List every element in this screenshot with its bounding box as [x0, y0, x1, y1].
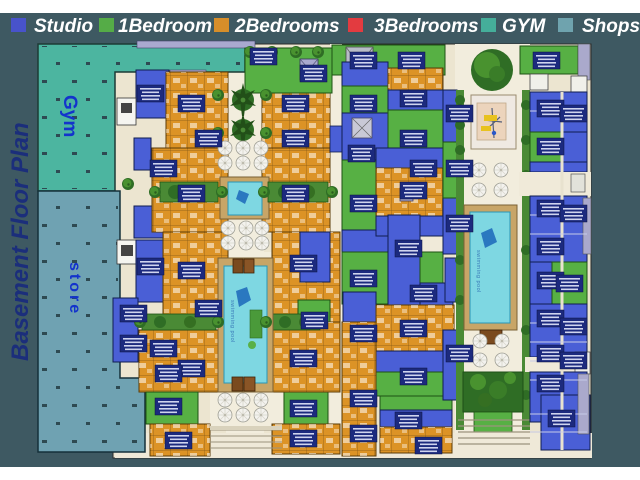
svg-text:store: store — [66, 262, 83, 316]
svg-text:Basement Floor Plan: Basement Floor Plan — [7, 122, 34, 361]
svg-text:Shops: Shops — [582, 16, 640, 37]
svg-text:Gym: Gym — [59, 95, 80, 137]
svg-text:3Bedrooms: 3Bedrooms — [374, 16, 479, 37]
svg-text:1Bedroom: 1Bedroom — [118, 16, 212, 37]
svg-text:swimming pool: swimming pool — [475, 250, 481, 293]
svg-text:GYM: GYM — [502, 16, 546, 37]
svg-text:swimming pool: swimming pool — [229, 300, 235, 343]
svg-text:2Bedrooms: 2Bedrooms — [234, 16, 340, 37]
svg-text:Studio: Studio — [34, 16, 93, 37]
